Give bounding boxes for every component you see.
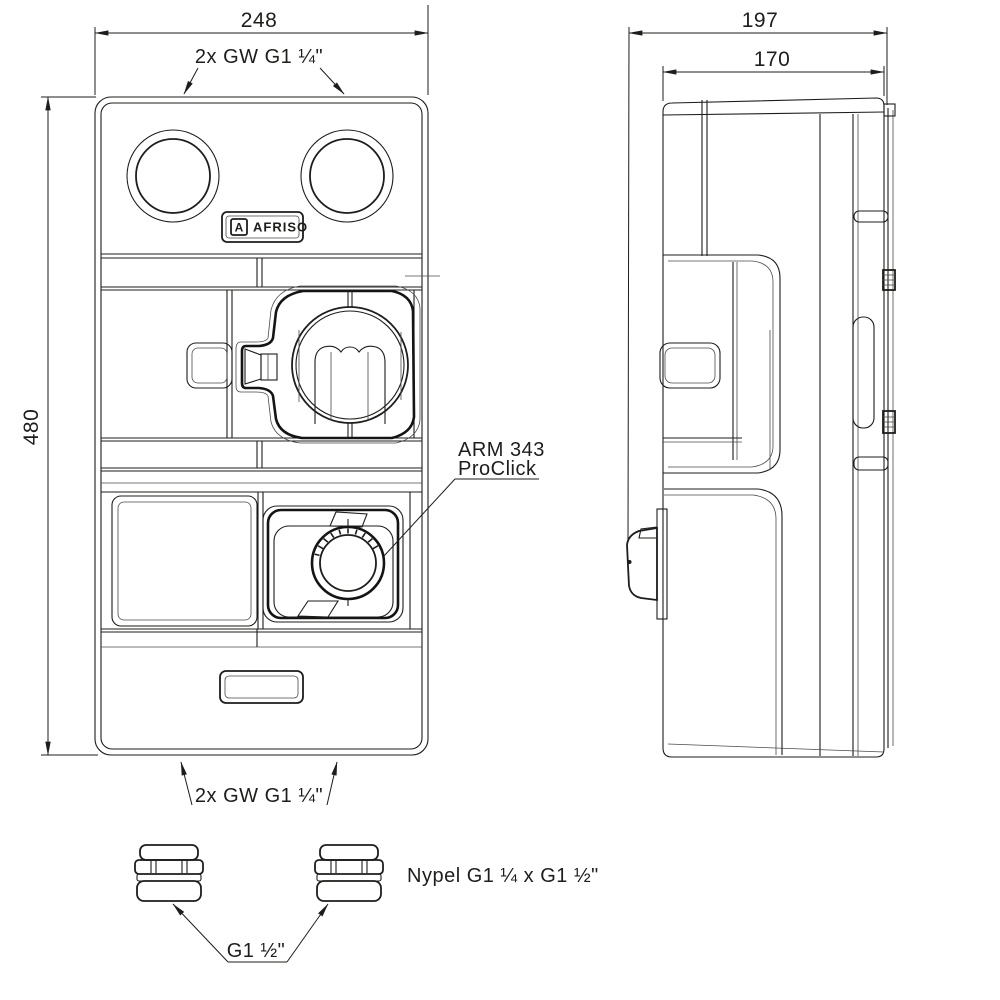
top-ports-text: 2x GW G1 ¼" bbox=[195, 46, 323, 68]
back-channel bbox=[853, 317, 874, 428]
actuator-section bbox=[112, 496, 403, 626]
label-bottom-ports: 2x GW G1 ¼" bbox=[181, 762, 337, 807]
dimension-side-overall-depth: 197 bbox=[628, 9, 887, 542]
knob-mount-plate bbox=[657, 509, 667, 619]
side-body-depth-value: 170 bbox=[754, 48, 791, 71]
badge-monogram: A bbox=[235, 221, 244, 235]
side-middle-cover bbox=[660, 255, 780, 473]
thread-label-text: G1 ½" bbox=[227, 940, 286, 962]
front-width-value: 248 bbox=[241, 9, 278, 32]
technical-drawing-page: A AFRISO bbox=[0, 0, 1000, 1000]
side-top-seam bbox=[663, 112, 884, 115]
thermometer-window-right-bezel bbox=[301, 130, 393, 222]
badge-brand-name: AFRISO bbox=[253, 220, 308, 235]
leader-line bbox=[287, 904, 328, 962]
valve-knob bbox=[296, 311, 404, 419]
clip-band-lower bbox=[854, 457, 888, 470]
actuator-bottom-tab bbox=[298, 601, 338, 617]
mixing-valve-section bbox=[187, 286, 420, 443]
valve-handle-tab bbox=[187, 343, 232, 388]
dimension-front-height: 480 bbox=[20, 97, 98, 755]
dial-rim bbox=[312, 527, 384, 599]
dimension-side-body-depth: 170 bbox=[663, 48, 884, 101]
front-inner-shell bbox=[101, 103, 422, 749]
leader-line bbox=[173, 904, 228, 962]
valve-knob-rim bbox=[292, 307, 408, 423]
label-thread: G1 ½" bbox=[173, 904, 328, 962]
afriso-badge: A AFRISO bbox=[222, 212, 308, 242]
extension-line bbox=[628, 27, 629, 542]
leader-line bbox=[384, 479, 455, 556]
nameplate bbox=[220, 671, 303, 703]
label-nipple: Nypel G1 ¼ x G1 ½" bbox=[407, 865, 599, 887]
valve-stem bbox=[245, 349, 277, 384]
label-actuator: ARM 343 ProClick bbox=[384, 439, 545, 556]
thermometer-windows bbox=[127, 130, 393, 222]
actuator-housing bbox=[263, 506, 403, 622]
leader-line bbox=[181, 762, 192, 805]
lower-left-panel bbox=[112, 496, 257, 626]
dimensional-drawing: A AFRISO bbox=[0, 0, 1000, 1000]
knob-profile bbox=[627, 528, 657, 600]
valve-knob-notches bbox=[348, 291, 352, 438]
nipple-label-text: Nypel G1 ¼ x G1 ½" bbox=[407, 865, 599, 887]
side-body-outline bbox=[663, 98, 884, 757]
thermometer-window-left-bezel bbox=[127, 130, 219, 222]
bottom-ports-text: 2x GW G1 ¼" bbox=[195, 785, 323, 807]
side-lower-cover bbox=[664, 489, 782, 755]
leader-line bbox=[327, 762, 337, 805]
thermometer-window-left bbox=[136, 139, 210, 213]
actuator-label-line2: ProClick bbox=[458, 458, 537, 480]
side-overall-depth-value: 197 bbox=[742, 9, 779, 32]
leader-line bbox=[320, 68, 344, 94]
side-view bbox=[627, 98, 895, 757]
dial-knob bbox=[320, 535, 376, 591]
front-vertical-seams bbox=[227, 258, 414, 647]
proclick-dial bbox=[312, 519, 384, 606]
front-view: A AFRISO bbox=[95, 97, 440, 755]
side-handle-tab bbox=[660, 343, 720, 388]
leader-line bbox=[184, 68, 198, 94]
thermometer-window-right bbox=[310, 139, 384, 213]
label-top-ports: 2x GW G1 ¼" bbox=[184, 46, 344, 94]
nipple-fitting-right bbox=[315, 845, 383, 901]
nipple-fitting-left bbox=[135, 845, 203, 901]
side-back-plate bbox=[853, 104, 895, 748]
knob-detent-dot bbox=[628, 560, 632, 564]
side-actuator-knob bbox=[627, 509, 667, 619]
clip-band-upper bbox=[854, 211, 888, 222]
front-height-value: 480 bbox=[20, 409, 43, 446]
nipple-fittings bbox=[135, 845, 383, 901]
